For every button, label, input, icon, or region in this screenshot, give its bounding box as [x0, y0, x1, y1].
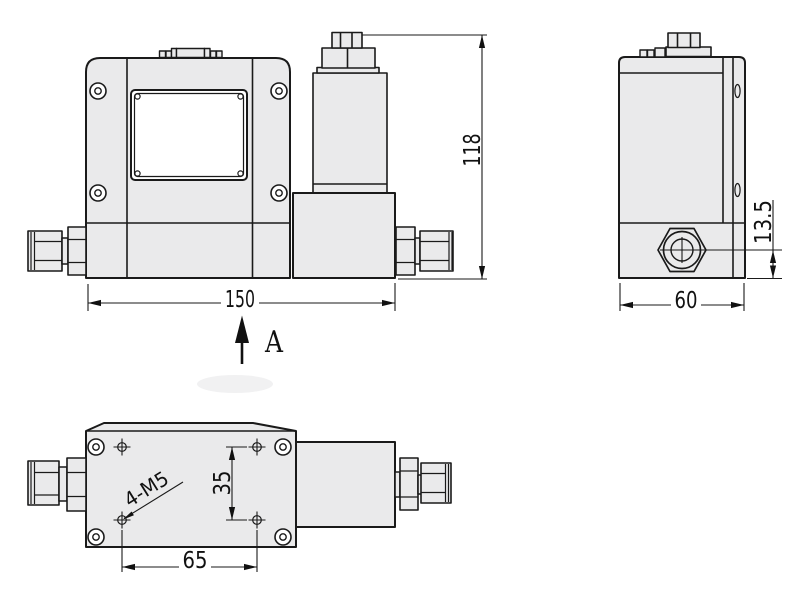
dim-width-value: 150: [225, 287, 255, 313]
dim-overall-width: 150: [88, 283, 395, 313]
valve-top-nut: [332, 33, 362, 49]
connector-pin: [211, 51, 217, 58]
dim-arrow: [479, 266, 485, 279]
inlet-fitting: [28, 227, 86, 275]
solenoid-valve: [313, 33, 387, 194]
technical-drawing-canvas: 150 118: [0, 0, 796, 612]
screw-inner: [95, 190, 101, 196]
fitting-hex: [400, 458, 418, 510]
dim-outlet-center-height: 13.5: [747, 200, 782, 279]
scan-smudge: [197, 375, 273, 393]
connector-pin: [166, 51, 172, 58]
dim-body-depth: 60: [620, 283, 744, 314]
plate-screw: [275, 529, 291, 545]
dim-arrow: [620, 302, 633, 308]
dim-arrow: [382, 300, 395, 306]
valve-block-bottom: [293, 442, 395, 527]
display-glass: [135, 94, 244, 177]
fitting-cap: [420, 231, 453, 271]
outlet-fitting-bottom: [395, 458, 451, 510]
screw-inner: [276, 190, 282, 196]
screw-inner: [280, 534, 286, 540]
view-direction-arrow-icon: [235, 316, 249, 344]
dim-arrow: [122, 564, 135, 570]
inlet-fitting-bottom: [28, 458, 86, 511]
connector-shell: [177, 49, 205, 58]
panel-screw: [90, 83, 106, 99]
plate-screw: [275, 439, 291, 455]
panel-screw: [271, 185, 287, 201]
front-view: [28, 33, 453, 279]
valve-nut-base: [666, 47, 711, 57]
dim-outlet-height-value: 13.5: [751, 200, 777, 244]
mounting-plate: [86, 423, 296, 547]
outlet-fitting: [396, 227, 453, 275]
screw-inner: [280, 444, 286, 450]
valve-nut-top: [668, 33, 700, 48]
dim-height-value: 118: [460, 134, 486, 167]
dim-arrow: [479, 35, 485, 48]
dim-arrow: [88, 300, 101, 306]
fitting-hex: [68, 227, 86, 275]
connector-pin: [640, 50, 647, 57]
connector-pin: [648, 50, 655, 57]
screw-inner: [95, 88, 101, 94]
plate-screw: [88, 439, 104, 455]
plate-screw: [88, 529, 104, 545]
screw-inner: [93, 534, 99, 540]
connector-shell: [655, 48, 665, 57]
panel-screw: [271, 83, 287, 99]
fitting-neck: [62, 238, 68, 264]
display-window: [131, 90, 247, 180]
valve-coil: [313, 73, 387, 193]
fitting-neck: [59, 467, 67, 501]
dim-arrow: [770, 266, 776, 279]
fitting-cap: [28, 461, 59, 505]
screw-inner: [276, 88, 282, 94]
dim-hole-pitch-h-value: 65: [183, 548, 208, 574]
dim-arrow: [770, 251, 776, 264]
valve-hex-nut: [322, 48, 375, 68]
fitting-hex: [396, 227, 415, 275]
connector-shoulder: [205, 49, 211, 58]
connector-pin: [160, 51, 166, 58]
dim-arrow: [244, 564, 257, 570]
valve-block: [293, 193, 395, 278]
dim-hole-pitch-v-value: 35: [210, 471, 236, 496]
screw-inner: [93, 444, 99, 450]
connector-shoulder: [172, 49, 177, 58]
side-top-connector: [640, 33, 711, 57]
fitting-hex: [67, 458, 86, 511]
engineering-drawing-page: 150 118: [0, 0, 796, 612]
bottom-view: 4-M5: [28, 375, 451, 547]
electrical-connector: [160, 49, 223, 58]
panel-screw: [90, 185, 106, 201]
fitting-cap: [28, 231, 62, 271]
connector-pin: [217, 51, 223, 58]
view-label: A: [264, 325, 283, 360]
dim-arrow: [731, 302, 744, 308]
fitting-cap: [421, 463, 451, 503]
view-direction-indicator: A: [235, 316, 283, 365]
dim-depth-value: 60: [675, 288, 698, 314]
